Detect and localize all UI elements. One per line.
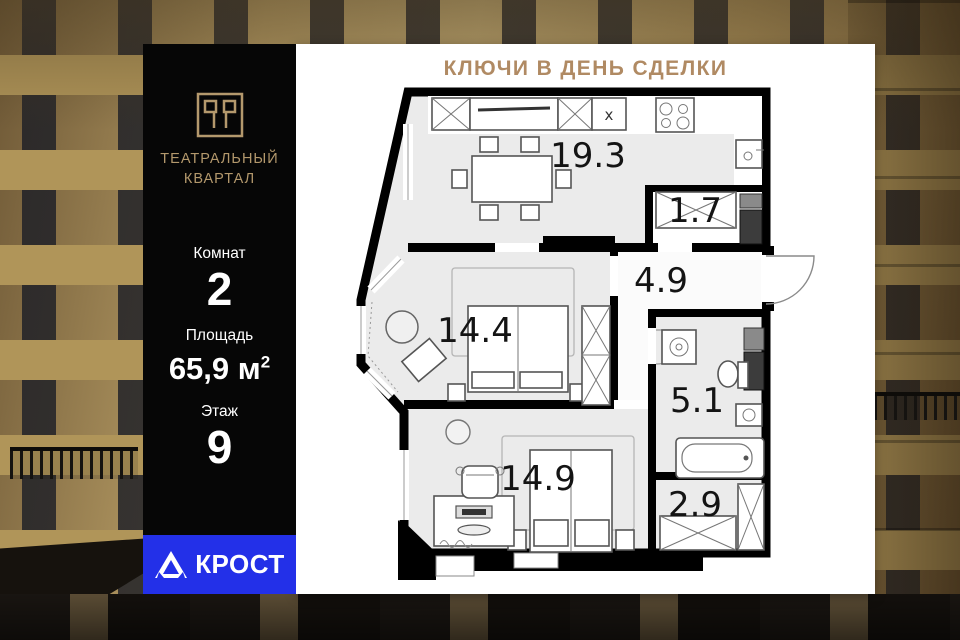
krost-triangle-icon <box>154 550 188 580</box>
street-level <box>0 594 960 640</box>
rooms-label: Комнат <box>193 245 245 263</box>
brand-name-line1: ТЕАТРАЛЬНЫЙ <box>160 150 278 170</box>
balcony-railing <box>874 392 960 420</box>
info-panel: ТЕАТРАЛЬНЫЙ КВАРТАЛ Комнат 2 Площадь 65,… <box>143 44 296 535</box>
rooms-value: 2 <box>207 265 233 313</box>
floorplan-card: КЛЮЧИ В ДЕНЬ СДЕЛКИ <box>296 44 875 594</box>
area-exponent: 2 <box>261 353 270 372</box>
brand-name-line2: КВАРТАЛ <box>160 170 278 190</box>
developer-name: КРОСТ <box>195 549 285 580</box>
area-value: 65,9 <box>169 351 229 386</box>
area-label: Площадь <box>186 327 253 345</box>
area-unit: м <box>238 351 261 386</box>
floor-label: Этаж <box>201 403 238 421</box>
area-value-line: 65,9 м2 <box>169 351 270 387</box>
brand-name: ТЕАТРАЛЬНЫЙ КВАРТАЛ <box>160 150 278 189</box>
brand-logo-icon <box>194 92 246 143</box>
banner-title: КЛЮЧИ В ДЕНЬ СДЕЛКИ <box>296 57 875 81</box>
developer-logo-bar: КРОСТ <box>143 535 296 594</box>
balcony-railing <box>10 447 138 479</box>
floor-value: 9 <box>207 423 233 471</box>
